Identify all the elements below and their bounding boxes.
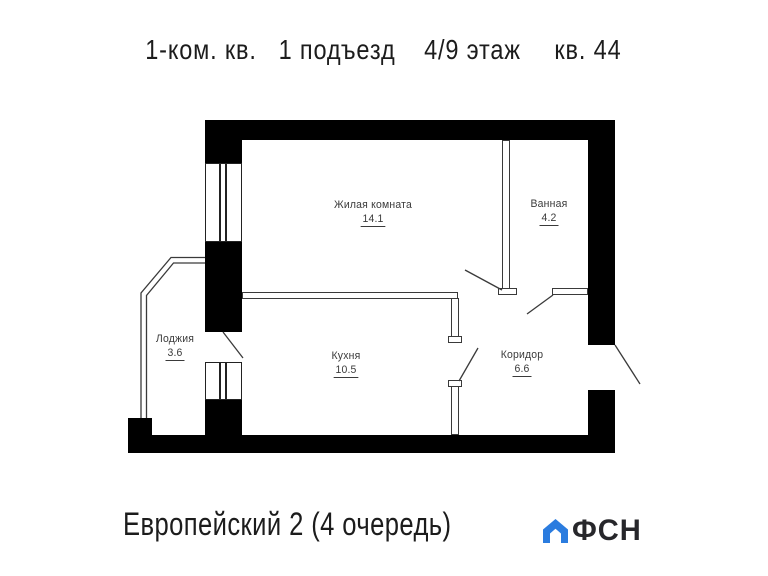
room-area: 3.6 — [142, 347, 209, 361]
floorplan-page: 1-ком. кв. 1 подъезд 4/9 этаж кв. 44 — [0, 0, 768, 576]
room-label-kitchen: Кухня 10.5 — [313, 350, 380, 378]
wall-left-bottom — [205, 400, 242, 435]
wall-left-mid — [205, 242, 242, 332]
title-part-entrance: 1 подъезд — [279, 34, 396, 66]
window-pane-line — [219, 363, 221, 399]
house-icon — [543, 519, 568, 543]
wall-bottom — [128, 435, 615, 453]
brand-logo: ФСН — [543, 514, 644, 548]
room-label-bathroom: Ванная 4.2 — [516, 198, 583, 226]
title-part-floor: 4/9 этаж — [424, 34, 521, 66]
room-name: Ванная — [516, 198, 583, 211]
partition-kitchen-right-lower — [451, 386, 459, 435]
wall-right-upper — [588, 140, 615, 345]
room-name: Жилая комната — [307, 199, 440, 212]
project-name: Европейский 2 (4 очередь) — [123, 506, 451, 543]
partition-kitchen-right-upper — [451, 298, 459, 337]
partition-cap — [498, 288, 517, 295]
window-pane-line — [225, 363, 227, 399]
room-area: 4.2 — [516, 212, 583, 226]
wall-loggia-pier — [128, 418, 152, 436]
window-pane-line — [219, 164, 221, 241]
room-label-corridor: Коридор 6.6 — [489, 349, 556, 377]
wall-left-top — [205, 140, 242, 163]
door-swing-kitchen — [459, 348, 478, 381]
wall-top — [205, 120, 615, 140]
partition-cap — [448, 336, 462, 343]
wall-right-lower — [588, 390, 615, 435]
door-swing-entrance — [615, 345, 640, 384]
window-symbol-loggia — [205, 362, 242, 400]
room-name: Лоджия — [142, 333, 209, 346]
room-area: 10.5 — [313, 364, 380, 378]
room-label-loggia: Лоджия 3.6 — [142, 333, 209, 361]
plan-linework — [0, 0, 768, 576]
plan-title: 1-ком. кв. 1 подъезд 4/9 этаж кв. 44 — [61, 34, 706, 66]
door-swing-living-room — [465, 270, 502, 290]
partition-kitchen-top — [242, 292, 458, 299]
title-part-rooms: 1-ком. кв. — [145, 34, 257, 66]
partition-bathroom-bottom — [552, 288, 588, 295]
door-swing-bathroom — [527, 295, 553, 314]
room-label-living: Жилая комната 14.1 — [307, 199, 440, 227]
partition-bathroom-left — [502, 140, 510, 289]
door-swing-balcony — [223, 332, 243, 358]
window-symbol-living — [205, 163, 242, 242]
room-name: Коридор — [489, 349, 556, 362]
title-part-apartment: кв. 44 — [554, 34, 621, 66]
room-area: 14.1 — [307, 213, 440, 227]
brand-text: ФСН — [572, 514, 642, 548]
room-area: 6.6 — [489, 363, 556, 377]
room-name: Кухня — [313, 350, 380, 363]
window-pane-line — [225, 164, 227, 241]
